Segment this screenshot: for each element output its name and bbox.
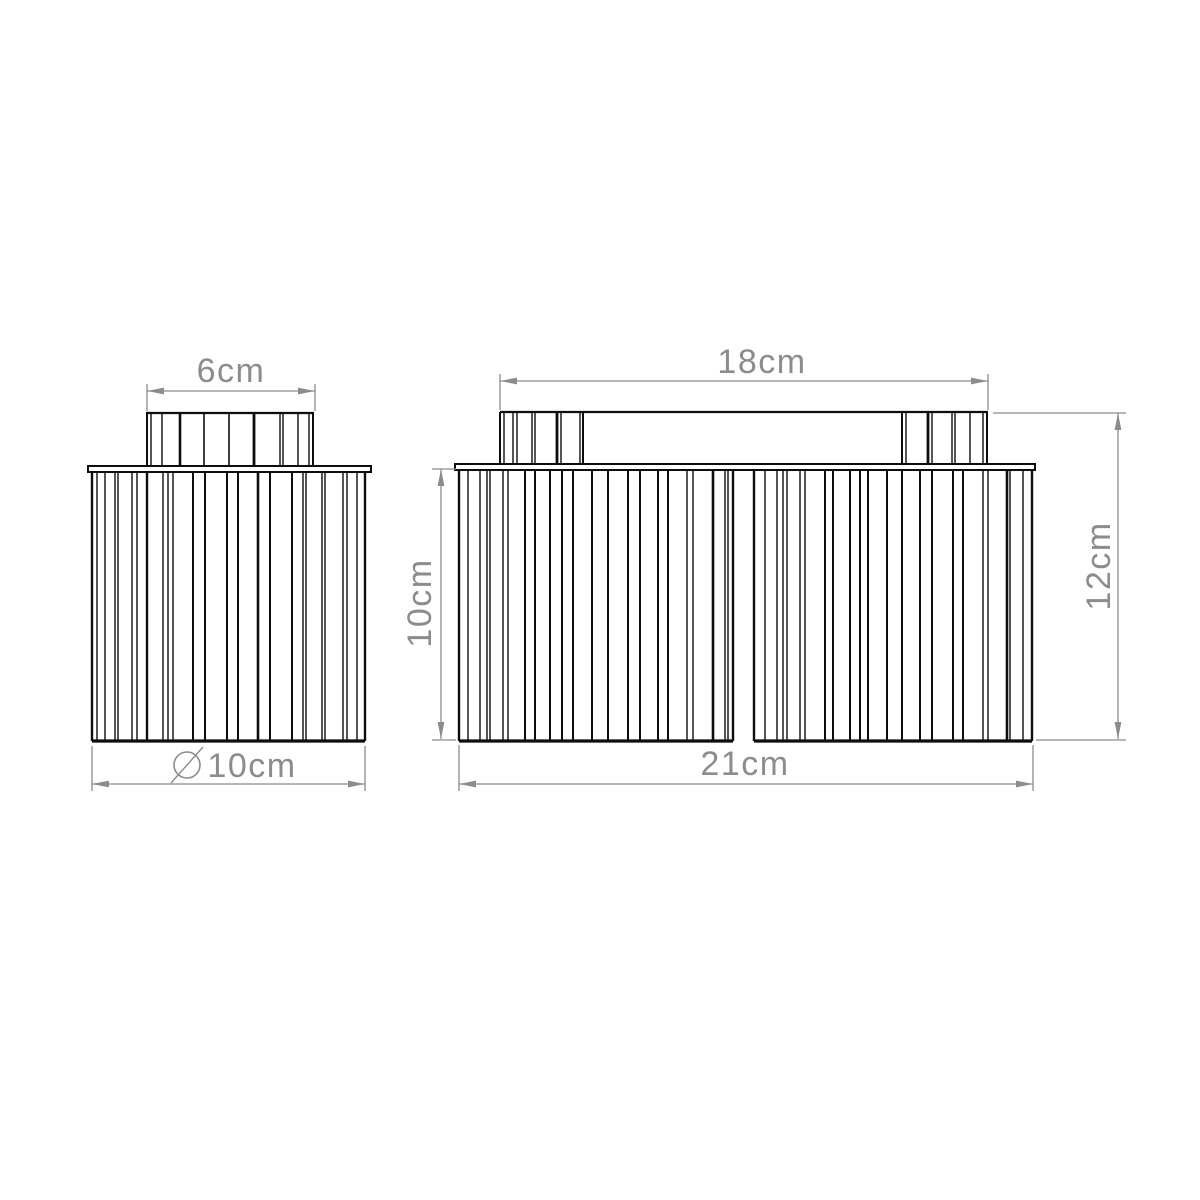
dimension-label: 6cm (197, 352, 266, 390)
right-view (455, 412, 1035, 741)
left-view (88, 413, 371, 741)
dimension-right-total-width: 21cm (459, 745, 1033, 791)
dimension-label: 10cm (207, 747, 296, 785)
dimension-arrow (438, 722, 445, 739)
dimension-arrow (298, 388, 315, 395)
dimension-diagram: 6cm10cm18cm10cm12cm21cm (0, 0, 1200, 1200)
dimension-label: 10cm (401, 558, 439, 647)
dimension-arrow (1115, 722, 1122, 739)
dimension-arrow (459, 781, 476, 788)
dimension-arrow (971, 378, 988, 385)
dimension-left-cap-width: 6cm (147, 352, 315, 411)
dimension-arrow (500, 378, 517, 385)
dimension-label: 21cm (700, 745, 789, 783)
dimension-left-diameter: 10cm (92, 746, 365, 791)
dimension-label: 18cm (717, 343, 806, 381)
dimension-arrow (1016, 781, 1033, 788)
dimension-arrow (1115, 413, 1122, 430)
dimension-right-canopy-width: 18cm (500, 343, 988, 410)
dimension-arrow (147, 388, 164, 395)
dimension-right-total-height: 12cm (993, 413, 1126, 740)
dimension-arrow (348, 781, 365, 788)
dimension-arrow (92, 781, 109, 788)
dimension-label: 12cm (1080, 521, 1118, 610)
dimension-right-shade-height: 10cm (401, 469, 456, 740)
top-plate (88, 466, 371, 472)
top-plate (455, 464, 1035, 470)
dimension-arrow (438, 469, 445, 486)
